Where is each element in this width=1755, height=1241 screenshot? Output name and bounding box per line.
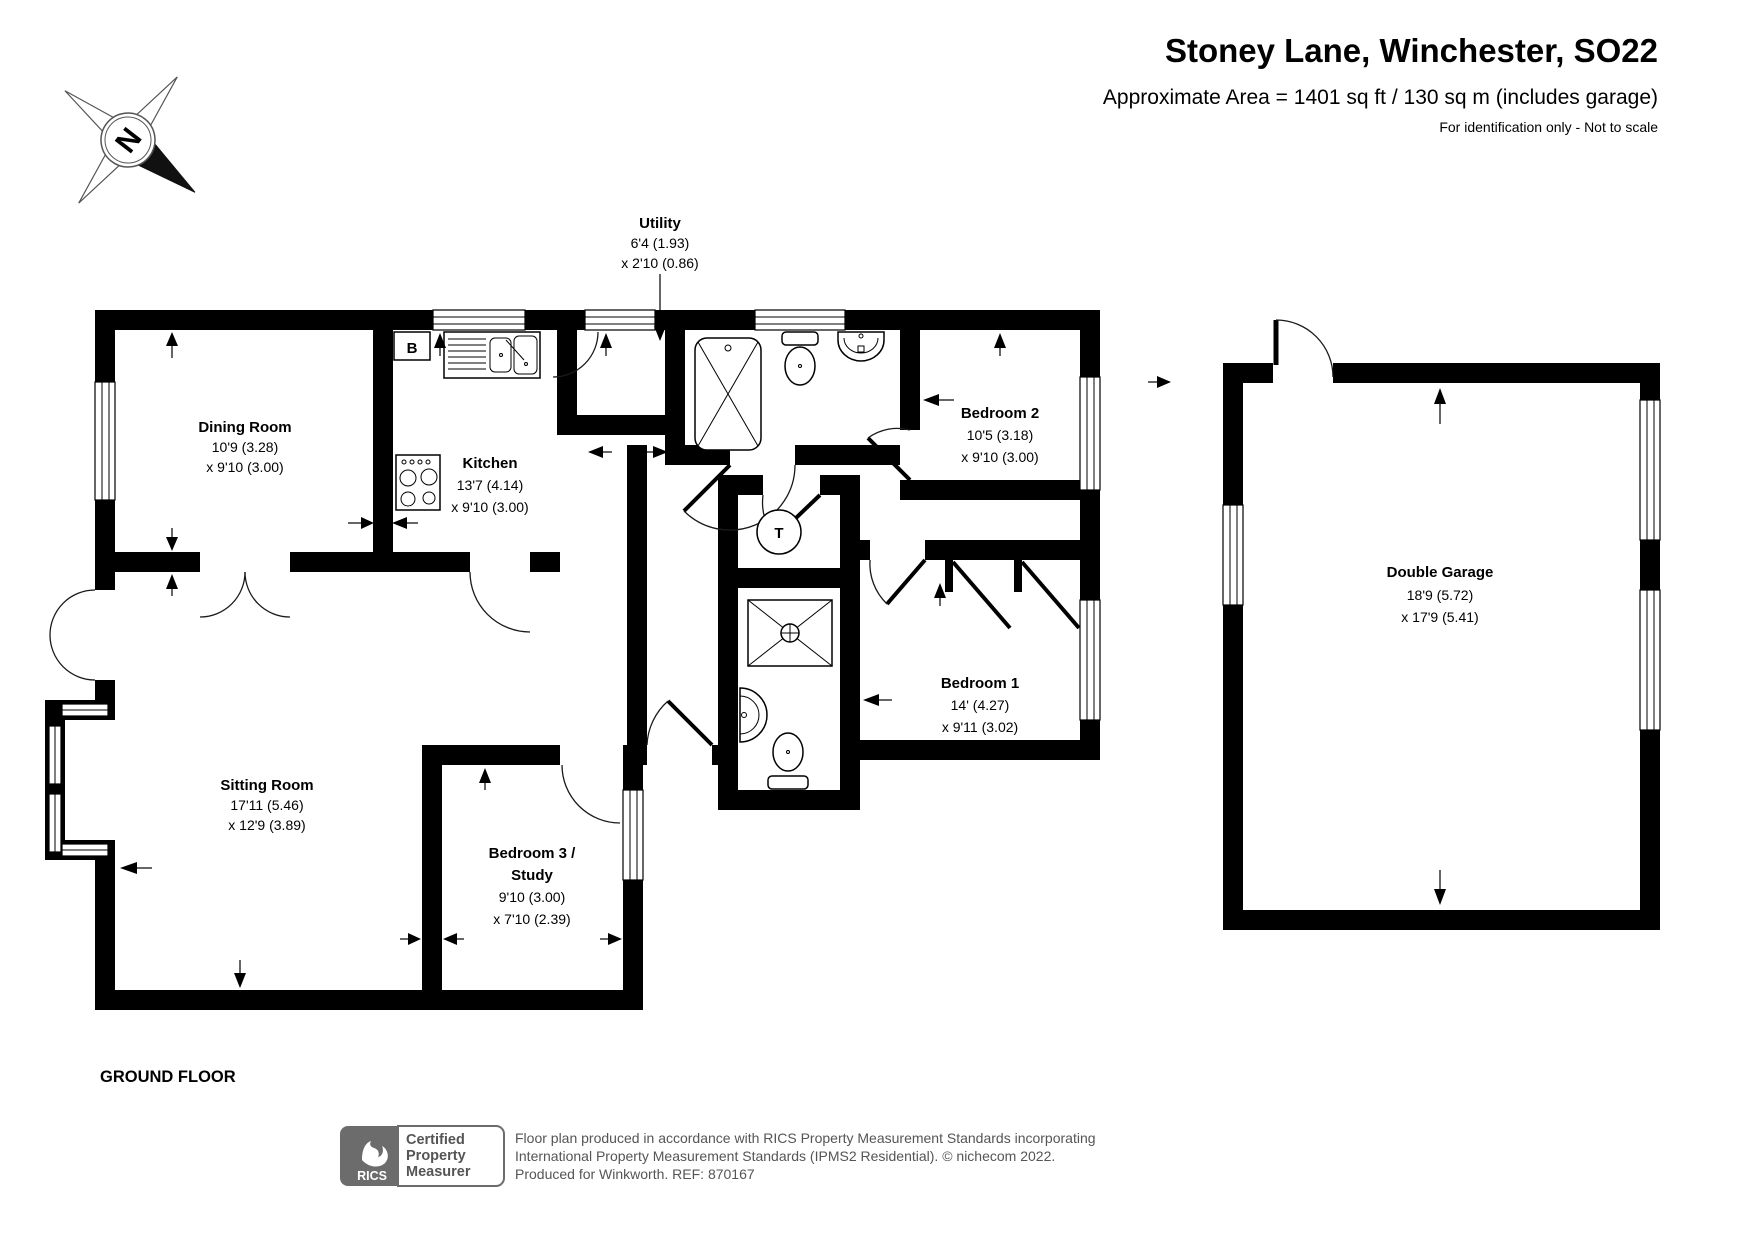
room-label-bedroom3: Bedroom 3 / Study 9'10 (3.00) x 7'10 (2.…	[489, 845, 577, 927]
floor-label: GROUND FLOOR	[100, 1068, 236, 1086]
cert-line1: Certified	[406, 1132, 465, 1148]
window	[49, 726, 61, 784]
floor-plan: Stoney Lane, Winchester, SO22 Approximat…	[0, 0, 1755, 1241]
dining-double-door-arc	[245, 572, 290, 617]
wardrobe-door	[1022, 562, 1079, 628]
svg-text:x 9'10 (3.00): x 9'10 (3.00)	[451, 499, 528, 515]
room-label-bedroom1: Bedroom 1 14' (4.27) x 9'11 (3.02)	[941, 675, 1019, 735]
french-door-arc	[50, 590, 95, 635]
hob	[396, 455, 440, 510]
window	[1223, 505, 1243, 605]
dim-arrow	[863, 694, 892, 706]
tank: T	[757, 510, 801, 554]
dim-arrow	[1148, 376, 1171, 388]
walls	[45, 310, 1660, 1010]
boiler-label: B	[407, 340, 418, 357]
svg-text:Sitting Room: Sitting Room	[220, 777, 313, 794]
svg-text:18'9 (5.72): 18'9 (5.72)	[1407, 587, 1474, 603]
svg-text:x 12'9 (3.89): x 12'9 (3.89)	[228, 817, 305, 833]
dim-arrow	[479, 768, 491, 790]
header: Stoney Lane, Winchester, SO22 Approximat…	[1103, 32, 1658, 135]
dim-arrow	[994, 333, 1006, 356]
kitchen-sink	[444, 332, 540, 378]
svg-text:Double Garage: Double Garage	[1387, 564, 1494, 581]
dim-arrow	[934, 583, 946, 606]
window	[62, 704, 108, 716]
footer-line3: Produced for Winkworth. REF: 870167	[515, 1166, 755, 1182]
svg-text:13'7 (4.14): 13'7 (4.14)	[457, 477, 524, 493]
window	[433, 310, 525, 330]
dim-arrow	[166, 528, 178, 551]
rics-logo: RICS Certified Property Measurer	[340, 1126, 504, 1186]
dim-arrow	[588, 446, 612, 458]
svg-text:10'9 (3.28): 10'9 (3.28)	[212, 439, 279, 455]
dining-double-door-arc	[200, 572, 245, 617]
svg-text:Bedroom 2: Bedroom 2	[961, 405, 1039, 422]
bath	[695, 338, 761, 450]
scale-note: For identification only - Not to scale	[1439, 119, 1658, 135]
dim-arrow	[644, 446, 668, 458]
dim-arrow	[348, 517, 374, 529]
wardrobe-door	[953, 562, 1010, 628]
svg-text:14' (4.27): 14' (4.27)	[951, 697, 1010, 713]
svg-text:Utility: Utility	[639, 215, 681, 232]
dim-arrow	[400, 933, 421, 945]
basin	[740, 688, 767, 742]
room-label-dining: Dining Room 10'9 (3.28) x 9'10 (3.00)	[198, 419, 291, 475]
toilet	[782, 332, 818, 385]
dim-arrow	[166, 574, 178, 596]
footer: RICS Certified Property Measurer Floor p…	[340, 1126, 1096, 1186]
svg-text:Study: Study	[511, 867, 553, 884]
dim-arrow	[120, 862, 152, 874]
dim-arrow	[392, 517, 418, 529]
bedroom1-door	[870, 560, 925, 604]
window	[755, 310, 845, 330]
doors	[50, 320, 1333, 823]
dim-arrow	[600, 933, 622, 945]
svg-text:Kitchen: Kitchen	[462, 455, 517, 472]
room-label-garage: Double Garage 18'9 (5.72) x 17'9 (5.41)	[1387, 564, 1494, 625]
cert-line2: Property	[406, 1148, 466, 1164]
window	[1080, 377, 1100, 490]
room-label-bedroom2: Bedroom 2 10'5 (3.18) x 9'10 (3.00)	[961, 405, 1039, 465]
dim-arrow	[923, 394, 954, 406]
compass-icon: N	[16, 28, 245, 256]
utility-leader	[654, 274, 666, 341]
svg-text:x 17'9 (5.41): x 17'9 (5.41)	[1401, 609, 1478, 625]
footer-line1: Floor plan produced in accordance with R…	[515, 1130, 1096, 1146]
window	[585, 310, 655, 330]
svg-text:Dining Room: Dining Room	[198, 419, 291, 436]
dim-arrow	[600, 333, 612, 356]
svg-text:Bedroom 3 /: Bedroom 3 /	[489, 845, 577, 862]
svg-text:x 2'10 (0.86): x 2'10 (0.86)	[621, 255, 698, 271]
svg-text:x 9'10 (3.00): x 9'10 (3.00)	[206, 459, 283, 475]
rics-wordmark: RICS	[357, 1169, 387, 1183]
room-label-utility: Utility 6'4 (1.93) x 2'10 (0.86)	[621, 215, 698, 271]
room-label-sitting: Sitting Room 17'11 (5.46) x 12'9 (3.89)	[220, 777, 313, 833]
window	[1640, 590, 1660, 730]
tank-label: T	[774, 525, 783, 542]
dim-arrow	[1434, 870, 1446, 905]
svg-text:x 9'10 (3.00): x 9'10 (3.00)	[961, 449, 1038, 465]
toilet	[768, 733, 808, 789]
window	[1640, 400, 1660, 540]
kitchen-hall-door-arc	[470, 572, 530, 632]
window	[95, 382, 115, 500]
window	[49, 794, 61, 852]
room-label-kitchen: Kitchen 13'7 (4.14) x 9'10 (3.00)	[451, 455, 528, 515]
dim-arrow	[234, 960, 246, 988]
svg-text:9'10 (3.00): 9'10 (3.00)	[499, 889, 566, 905]
window	[62, 844, 108, 856]
window	[1080, 600, 1100, 720]
svg-text:x 7'10 (2.39): x 7'10 (2.39)	[493, 911, 570, 927]
shower	[748, 600, 832, 666]
floorplan-page: Stoney Lane, Winchester, SO22 Approximat…	[0, 0, 1755, 1241]
window	[623, 790, 643, 880]
footer-line2: International Property Measurement Stand…	[515, 1148, 1055, 1164]
page-title: Stoney Lane, Winchester, SO22	[1165, 32, 1658, 69]
svg-text:x 9'11 (3.02): x 9'11 (3.02)	[942, 719, 1018, 735]
svg-text:10'5 (3.18): 10'5 (3.18)	[967, 427, 1034, 443]
bedroom3-door-arc	[562, 765, 620, 823]
basin	[838, 332, 884, 361]
svg-text:17'11 (5.46): 17'11 (5.46)	[230, 797, 303, 813]
french-door-arc	[50, 635, 95, 680]
dim-arrow	[443, 933, 464, 945]
svg-text:6'4 (1.93): 6'4 (1.93)	[631, 235, 690, 251]
garage-door	[1276, 320, 1333, 377]
dim-arrow	[166, 332, 178, 358]
cert-line3: Measurer	[406, 1164, 471, 1180]
hall-sitting-door	[647, 701, 712, 745]
area-subtitle: Approximate Area = 1401 sq ft / 130 sq m…	[1103, 86, 1658, 109]
svg-text:Bedroom 1: Bedroom 1	[941, 675, 1019, 692]
dim-arrow	[1434, 388, 1446, 424]
